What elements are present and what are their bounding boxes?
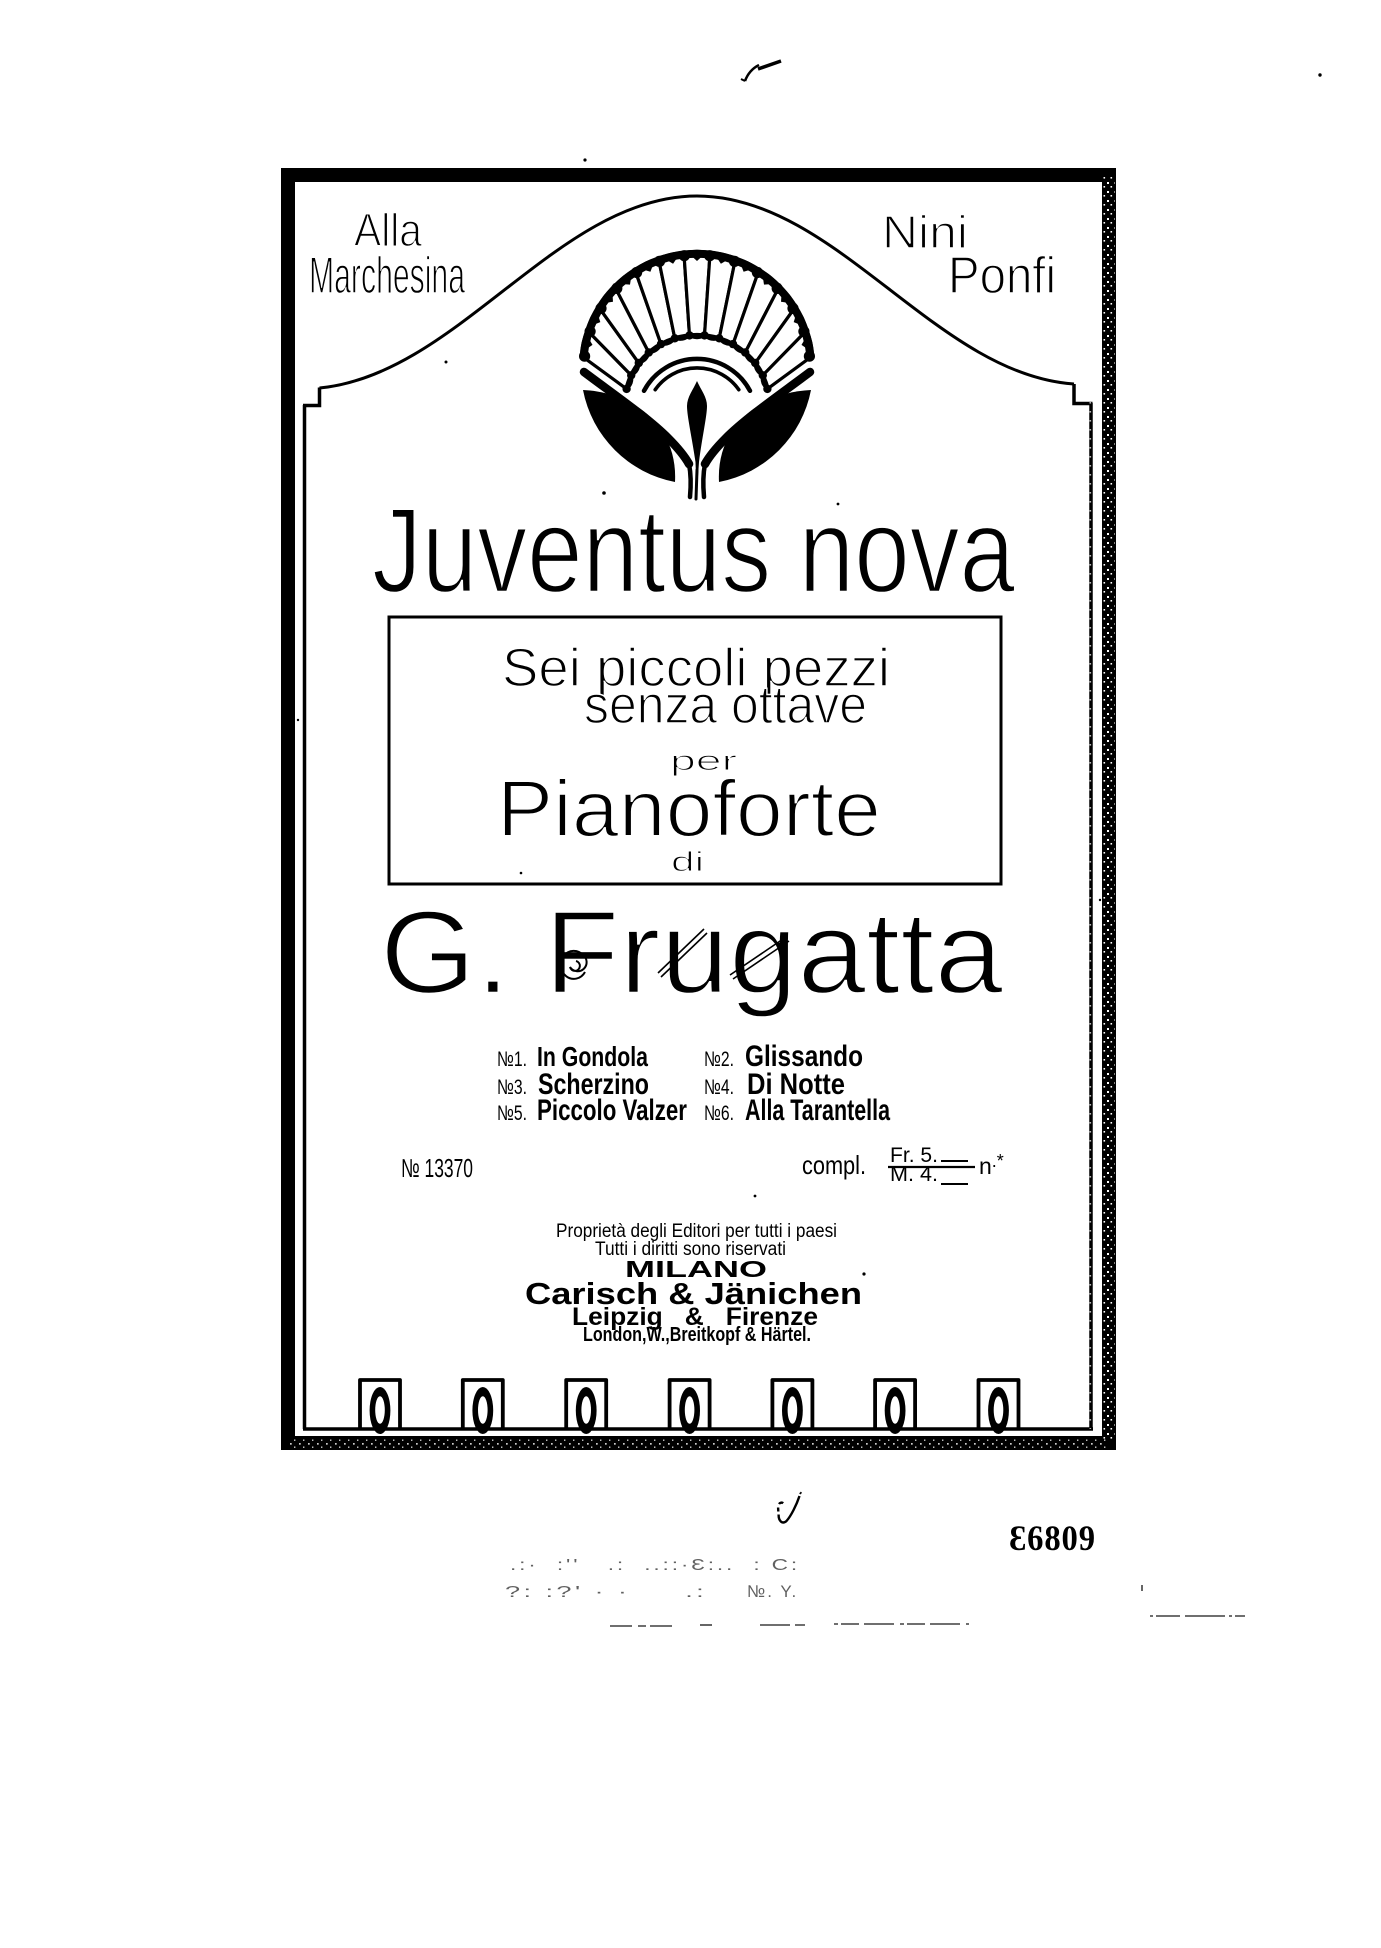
- svg-text:Marchesina: Marchesina: [309, 247, 465, 305]
- svg-text:.:· :'' .: ..::·Ɛ:.. : C:: .:· :'' .: ..::·Ɛ:.. : C:: [510, 1557, 800, 1574]
- svg-text:№. Y.: №. Y.: [747, 1582, 798, 1601]
- svg-text:?: :?' · · .:: ?: :?' · · .:: [505, 1584, 740, 1601]
- svg-text:Ponfi: Ponfi: [948, 247, 1056, 305]
- svg-text:№6.: №6.: [704, 1102, 734, 1125]
- svg-text:London,W.,Breitkopf & Härtel.: London,W.,Breitkopf & Härtel.: [583, 1324, 811, 1346]
- svg-text:№5.: №5.: [497, 1102, 527, 1125]
- svg-text:Ɛ6809: Ɛ6809: [1009, 1518, 1096, 1558]
- svg-text:№1.: №1.: [497, 1048, 527, 1071]
- svg-text:compl.: compl.: [802, 1150, 866, 1180]
- svg-text:№2.: №2.: [704, 1048, 734, 1071]
- svg-text:senza ottave: senza ottave: [584, 675, 867, 735]
- svg-text:M. 4.: M. 4.: [890, 1163, 938, 1186]
- svg-text:Piccolo Valzer: Piccolo Valzer: [537, 1094, 687, 1127]
- svg-text:№4.: №4.: [704, 1076, 734, 1099]
- svg-text:№ 13370: № 13370: [401, 1153, 473, 1183]
- svg-text:G. Frugatta: G. Frugatta: [380, 887, 1003, 1019]
- svg-text:Alla Tarantella: Alla Tarantella: [745, 1094, 890, 1127]
- svg-text:№3.: №3.: [497, 1076, 527, 1099]
- svg-text:di: di: [671, 846, 704, 877]
- svg-text:Pianoforte: Pianoforte: [497, 764, 881, 853]
- svg-text:Juventus nova: Juventus nova: [372, 482, 1016, 618]
